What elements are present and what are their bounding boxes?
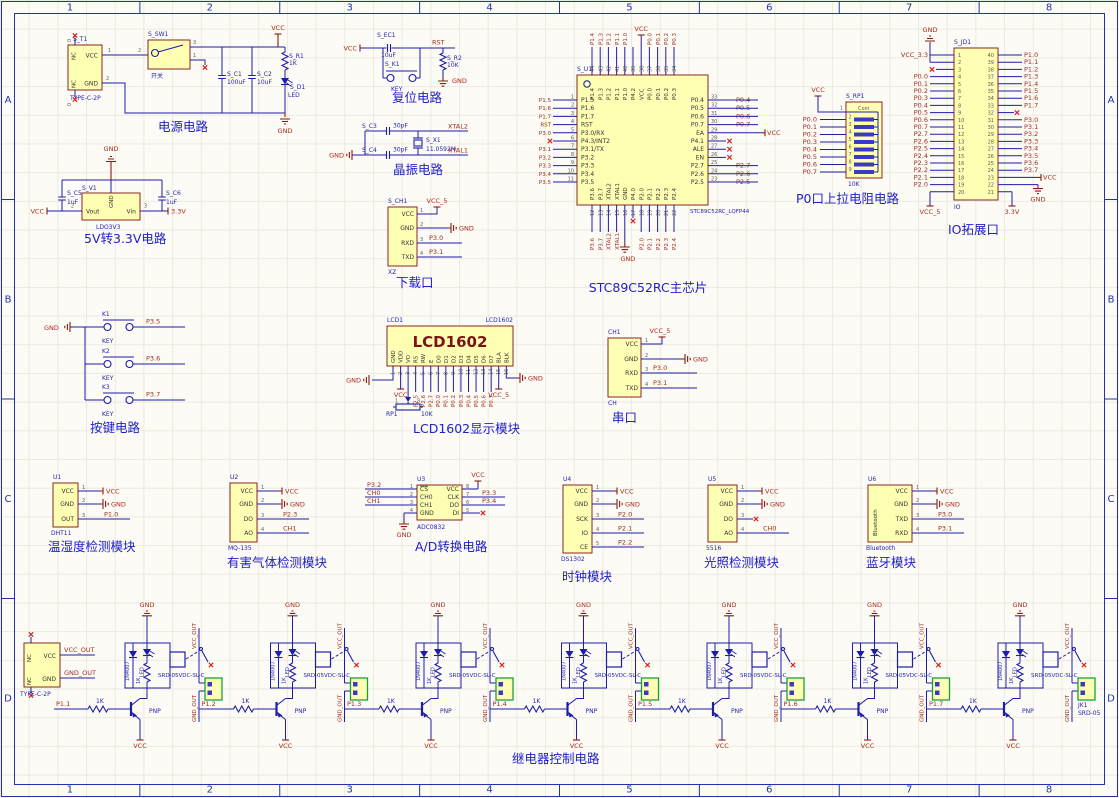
terminal-pin [644,682,649,687]
base-resistor-value: 1K [96,698,105,705]
relay-input-net: P1.4 [493,700,507,708]
pin-number: 1 [840,106,843,112]
relay-coil[interactable] [898,652,913,667]
diode-symbol [857,651,865,658]
no-connect-mark [727,139,731,143]
wire [930,42,954,62]
no-connect-mark [203,65,207,69]
power-bar [614,488,617,495]
pin-name: P3.7 [598,187,604,200]
net-label: CH1 [283,525,297,533]
refdes: U4 [563,476,571,483]
block-title: 温湿度检测模块 [48,539,136,554]
pin-number: 7 [571,144,574,150]
crystal-symbol[interactable] [414,140,422,146]
key-symbol[interactable] [126,324,133,331]
pin-name: P1.3 [598,87,604,100]
gnd-symbol [347,150,352,160]
pin-name: BLK [504,352,510,363]
refdes: S_C2 [257,71,272,78]
net-label: P3.0 [539,131,552,137]
wire [345,683,351,691]
pin-number: 40 [988,53,994,59]
refdes: S_R2 [447,55,462,62]
diode-value: 1N4007 [853,661,859,681]
pack-resistor [854,163,874,167]
gnd-symbol [1033,189,1043,194]
pin-number: 3 [916,513,919,519]
pin-name: CH1 [420,502,433,509]
pin-name: P2.5 [691,179,704,186]
relay-linkage [914,651,927,659]
pin-name: VDD [399,351,405,363]
power-bar [100,488,103,495]
pin-name: P0.3 [672,87,678,100]
power-bar [1038,174,1041,181]
vcc-label: VCC [471,471,485,479]
net-label: VCC_5 [488,391,509,399]
gnd-out-label: GND_OUT [338,694,344,722]
led-arrows [440,651,446,657]
net-label: P3.3 [482,489,496,497]
pin-number: 43 [598,66,604,72]
resistor-value: 1K [136,677,142,684]
key-symbol[interactable] [387,75,394,82]
terminal-pin [499,691,504,696]
pin-name: CH0 [420,494,433,501]
pin-number: 6 [571,136,574,142]
net-label: P3.2 [539,155,551,161]
block-title: 下载口 [396,275,434,290]
terminal-pin [353,691,358,696]
gnd-symbol [448,223,456,233]
block-title: 电源电路 [158,119,209,134]
zone-column-label: 7 [906,3,912,14]
value: Bluetooth [866,545,895,552]
net-label: P2.4 [672,237,678,250]
wire [140,688,147,699]
no-connect-mark [791,663,795,667]
pin-name: D3 [459,355,465,363]
pin-name: OUT [61,516,74,523]
base-resistor-value: 1K [387,698,396,705]
relay-linkage [1059,651,1072,659]
pin-number: 9 [571,160,574,166]
pin-name: P2.0 [639,187,645,200]
pin-number: 37 [648,66,654,72]
vcc-label: VCC [620,488,634,496]
pin-name: RXD [401,240,414,247]
refdes: S_CH1 [388,198,408,205]
relay-linkage [186,651,199,659]
refdes: U2 [230,474,238,481]
vcc-label: VCC [940,488,954,496]
resistor-symbol [88,706,108,712]
relay-input-net: P1.5 [638,700,652,708]
pin-name: P1.7 [581,113,594,120]
capacitor-symbol [387,127,390,135]
relay-input-net: P1.6 [784,700,798,708]
relay-coil[interactable] [316,652,331,667]
gnd-label: GND [576,601,591,609]
pin-name: BLA [497,352,503,363]
net-label: XTAL1 [448,147,468,155]
pin-number: 4 [420,251,423,257]
gnd-label: GND [452,77,467,85]
relay-model: SRD-05VDC-SL-C [158,673,205,679]
pin-number: 3 [193,40,196,46]
base-resistor-value: 1K [242,698,251,705]
key-symbol[interactable] [104,397,111,404]
block-title: 光照检测模块 [704,555,780,570]
net-label: RST [540,123,551,129]
pin-name: P1.6 [581,105,594,112]
pin-number: 13 [598,210,604,216]
net-label: VCC_5 [427,197,448,205]
pin-name: D5 [474,355,480,363]
zone-row-label: D [4,694,12,705]
pin-number: 8 [849,160,852,166]
pin-name: P3.3 [581,163,594,170]
gnd-symbol [925,36,935,41]
pin-name: CS [420,486,428,493]
pin-name: VCC [62,488,74,495]
pin-number: 35 [664,66,670,72]
contact-pivot [1073,648,1076,651]
contact-lever [493,651,499,662]
diode-value: 1N4007 [271,661,277,681]
pin-name: P4.0 [631,187,637,200]
relay-linkage [768,651,781,659]
gnd-symbol [280,119,290,124]
pin-name: VCC [626,341,638,348]
net-label: P3.0 [938,511,952,519]
net-label: P3.7 [146,391,160,399]
vcc-label: VCC [271,24,285,32]
power-switch[interactable] [148,40,190,69]
pin-number: 23 [988,175,994,181]
key-symbol[interactable] [409,75,416,82]
pin-number: 37 [988,75,994,81]
pin-number: 3 [261,513,264,519]
net-label: P1.0 [104,511,118,519]
gnd-label: GND [620,255,635,263]
relay-coil[interactable] [607,652,622,667]
refdes: S_C3 [362,123,377,130]
net-label: P3.2 [367,481,381,489]
pin-number: 6 [958,89,961,95]
pin-number: 3 [571,111,574,117]
pin-number: 38 [988,67,994,73]
gnd-label: GND [431,601,446,609]
relay-linkage [477,651,490,659]
value: DHT11 [51,530,72,537]
net-label: P2.2 [618,539,632,547]
no-connect-mark [29,632,33,636]
net-label: VCC_3.3 [901,51,928,59]
gnd-label: GND [278,127,293,135]
pin-number: 36 [988,82,994,88]
pin-number: 12 [590,210,596,216]
value: 10K [421,411,434,418]
refdes: S_C1 [227,71,242,78]
zone-row-label: A [1108,95,1115,106]
pin-number: 3 [420,237,423,243]
zone-column-label: 4 [486,785,492,796]
net-label: P0.7 [803,168,817,176]
net-label: P3.1 [938,525,952,533]
pin-name: TXD [625,385,639,392]
vcc-label: VCC [133,742,147,750]
block-title: 有害气体检测模块 [227,555,328,570]
pin-number: 34 [672,66,678,72]
terminal-block[interactable] [351,678,368,700]
pin-name: VCC [447,486,459,493]
schematic-canvas[interactable]: 1122334455667788AABBCCDDS_T1VCCGNDNCNCTY… [0,0,1119,798]
pin-number: 19 [648,210,654,216]
relay-model: SRD-05VDC-SL-C [304,673,351,679]
pin-number: 24 [988,168,994,174]
resistor-symbol [282,52,288,70]
net-label: CH0 [763,525,777,533]
net-label: P3.7 [1024,166,1038,174]
value: 1uF [67,199,79,206]
gnd-symbol [364,375,369,385]
refdes: S_X1 [426,137,441,144]
block-title: 时钟模块 [562,569,613,584]
relay-model: SRD-05VDC-SL-C [449,673,496,679]
net-label: P0.2 [664,33,670,45]
base-resistor-value: 1K [533,698,542,705]
value: XZ [388,269,396,276]
refdes: U1 [53,474,61,481]
pin-number: 3 [596,513,599,519]
value: IO [954,204,961,211]
pin-name: D2 [451,355,457,363]
terminal-block[interactable] [642,678,659,700]
pin-name: P1.5 [581,97,594,104]
relay-input-net: P1.1 [56,700,70,708]
pack-resistor [854,133,874,137]
terminal-refdes: JK1 [1077,702,1088,709]
net-label: VCC_5 [920,208,941,216]
pin-name: EN [696,154,704,161]
relay-model: SRD-05VDC-SL-C [1031,673,1078,679]
pin-number: 19 [958,183,964,189]
pin-number: 11 [958,125,964,131]
vcc-label: VCC [861,742,875,750]
pin-number: 18 [958,175,964,181]
wire [190,60,205,65]
wire [636,683,642,691]
pin-name: NC [27,654,33,662]
pin-number: 1 [261,485,264,491]
pin-name: NC [72,52,78,60]
no-connect-mark [500,663,504,667]
vcc-label: VCC [1043,173,1057,181]
pin-name: P3.2 [581,154,594,161]
pin-name: GND [623,187,629,200]
pin-name: P0.1 [656,88,662,100]
pin-name: CLK [448,494,461,501]
key-symbol[interactable] [126,361,133,368]
pin-number: 36 [656,66,662,72]
pin-name: XTAL2 [607,183,613,200]
gnd-symbol [724,611,734,616]
pin-name: E [429,359,435,363]
block-title: 复位电路 [392,90,443,105]
wire [1072,683,1078,691]
value: 1K [289,60,298,67]
refdes: S_V1 [82,185,97,192]
vcc-out-label: VCC_OUT [192,622,198,649]
relay-model: SRD-05VDC-SL-C [740,673,787,679]
terminal-block[interactable] [933,678,950,700]
pnp-label: PNP [440,708,452,715]
gnd-label: GND [397,531,412,539]
pack-resistor [854,170,874,174]
led-value: LED [431,667,437,677]
pin-name: VCC [402,211,414,218]
wire [927,683,933,691]
pin-name: P3.1/TX [581,146,604,153]
resistor-symbol [234,706,254,712]
led-value: LED [285,667,291,677]
net-label: P1.7 [539,114,552,120]
value: ADC0832 [417,524,445,531]
gnd-symbol [579,611,589,616]
terminal-block[interactable] [205,678,222,700]
value: 10K [848,181,861,188]
no-connect-mark [354,663,358,667]
terminal-block[interactable] [496,678,513,700]
wire [102,83,285,113]
pin-name: P2.7 [691,163,704,170]
contact-lever [639,651,645,662]
gnd-label: GND [528,375,543,383]
value: TYPE-C-2P [19,691,51,698]
value: 100uF [227,79,246,86]
relay-model: SRD-05VDC-SL-C [595,673,642,679]
net-label: P2.6 [421,394,427,407]
vcc-label: VCC [279,742,293,750]
refdes: K3 [102,384,110,391]
net-label: CH0 [367,489,381,497]
wire [868,688,875,699]
gnd-out-label: GND_OUT [629,694,635,722]
wire [577,688,584,699]
pin-name: ALE [693,146,704,153]
gnd-label: GND [1031,196,1046,204]
lcd-display-text: LCD1602 [413,333,488,351]
pin-number: 3 [82,513,85,519]
terminal-block[interactable] [1078,678,1095,700]
net-label: 3.3V [171,208,186,216]
power-bar [759,488,762,495]
net-label: P0.3 [459,394,465,407]
refdes: S_SW1 [148,31,169,38]
resistor-symbol [816,706,836,712]
key-symbol[interactable] [104,361,111,368]
gnd-symbol [1015,611,1025,616]
pack-resistor [854,148,874,152]
zone-column-label: 6 [766,785,772,796]
net-label: P3.4 [539,172,552,178]
capacitor-symbol [58,197,66,200]
relay-coil[interactable] [170,652,185,667]
pin-number: 20 [656,210,662,216]
zone-column-label: 5 [626,785,632,796]
relay-coil[interactable] [752,652,767,667]
value: 1uF [166,199,178,206]
net-label: P3.0 [429,234,443,242]
relay-coil[interactable] [1043,652,1058,667]
net-label: P3.4 [482,497,496,505]
block-title: 继电器控制电路 [512,751,600,766]
pnp-collector [1004,699,1013,706]
gnd-out-label: GND_OUT [192,694,198,722]
refdes: U3 [417,476,425,483]
led-value: LED [576,667,582,677]
pin-number: 14 [958,147,964,153]
pin-name: GND [624,356,638,363]
net-label: 3.3V [1005,208,1020,216]
terminal-value: SRD-05 [1078,710,1101,717]
pnp-label: PNP [586,708,598,715]
key-symbol[interactable] [104,324,111,331]
key-symbol[interactable] [126,397,133,404]
pin-number: 2 [106,76,109,82]
pnp-collector [277,699,286,706]
vcc-out-label: VCC_OUT [774,622,780,649]
zone-row-label: B [1108,295,1115,306]
net-label: P3.3 [539,164,552,170]
nc-number: 0 [67,39,73,42]
value: LDO3V3 [96,224,121,231]
net-label: P0.1 [444,395,450,407]
net-label: P3.6 [590,237,596,250]
pin-name: GND [84,81,98,88]
pin-name: GND [109,195,115,208]
pnp-collector [568,699,577,706]
gnd-symbol [65,322,70,332]
pin-number: 2 [849,115,852,121]
block-title: 按键电路 [90,420,141,435]
net-label: P1.3 [598,32,604,45]
value: 30pF [393,123,408,130]
pin-number: 4 [261,527,264,533]
gnd-symbol [279,499,287,509]
gnd-label: GND [923,26,938,34]
pin-name: D7 [489,355,495,363]
relay-coil[interactable] [461,652,476,667]
gnd-label: GND [329,152,344,160]
capacitor-symbol [388,44,391,52]
pin-number: 4 [741,527,744,533]
pack-resistor [854,155,874,159]
resistor-value: 1K [573,677,579,684]
net-label: GND_OUT [64,669,96,677]
pin-number: 5 [958,82,961,88]
terminal-block[interactable] [787,678,804,700]
pin-name: XTAL1 [615,183,621,200]
refdes: S_R1 [289,53,304,60]
pin-number: 14 [607,210,613,216]
value: STC89C52RC_LQFP44 [690,209,750,215]
pin-number: 1 [395,399,398,405]
net-label: P3.7 [598,237,604,250]
refdes: S_K1 [385,61,400,68]
